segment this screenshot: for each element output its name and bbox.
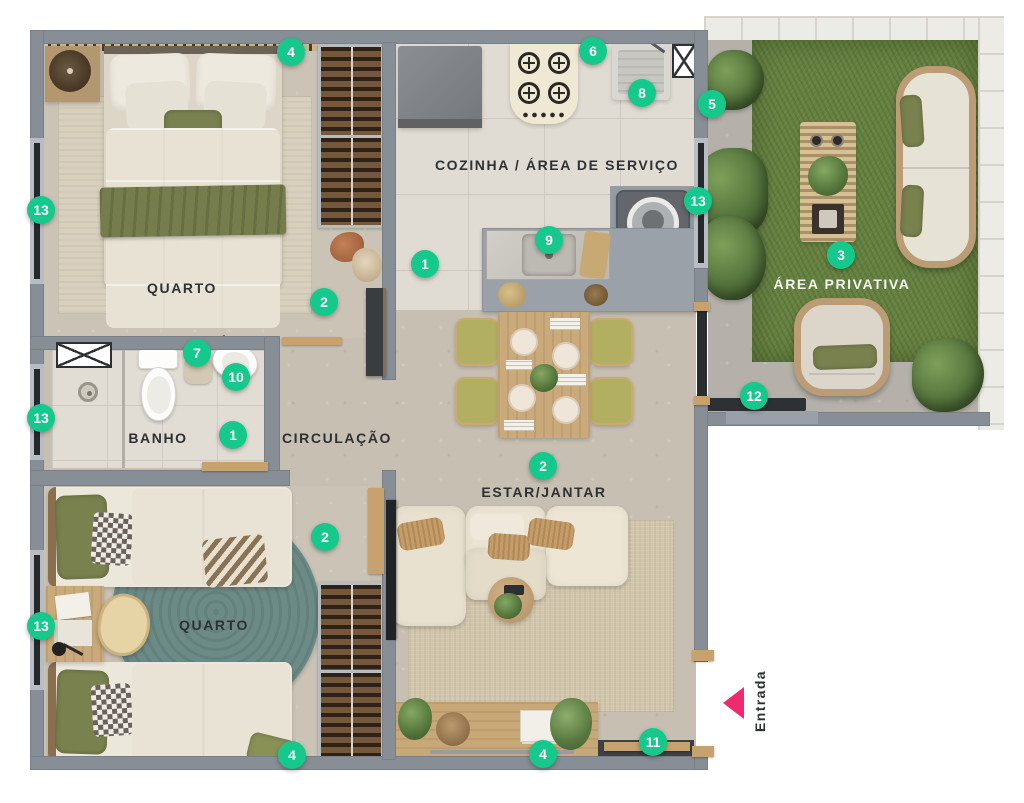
- entrance-label: Entrada: [752, 670, 768, 732]
- notebook: [55, 592, 92, 620]
- console-plant: [398, 698, 432, 740]
- console-flowers: [550, 698, 592, 750]
- toilet: [138, 349, 178, 369]
- desk: [46, 586, 104, 662]
- bath-stool: [184, 358, 212, 384]
- room-label-circulacao: CIRCULAÇÃO: [282, 430, 392, 446]
- armchair-seam: [809, 373, 875, 375]
- dining-chair: [455, 318, 499, 366]
- plate: [510, 328, 538, 356]
- toilet-bowl: [141, 367, 176, 421]
- fridge: [398, 46, 482, 128]
- patio-door-jamb: [694, 396, 710, 405]
- outdoor-armchair: [794, 298, 890, 396]
- fridge-base: [398, 119, 482, 128]
- drain-dot: [87, 391, 92, 396]
- bedroom2-door-leaf: [368, 488, 384, 574]
- shower-divider: [122, 350, 125, 468]
- wardrobe-section: [321, 47, 381, 135]
- outdoor-sofa-pillow: [900, 184, 925, 237]
- stove-knobs: [521, 110, 567, 120]
- lamp-dot: [67, 68, 73, 74]
- wall-bottom: [30, 756, 708, 770]
- dining-table: [498, 312, 590, 438]
- window: [30, 364, 44, 460]
- wardrobe: [318, 44, 384, 228]
- shower-drain: [78, 382, 98, 402]
- entry-door-jamb: [692, 746, 714, 757]
- sink-bowl: [219, 349, 251, 377]
- console-bowl: [436, 712, 470, 746]
- outdoor-sofa-pillow: [899, 94, 925, 147]
- placemat: [504, 420, 534, 431]
- hall-cabinet: [366, 288, 386, 376]
- placemat: [550, 318, 580, 330]
- table-plant: [808, 156, 848, 196]
- laundry-sink-basin: [618, 50, 664, 94]
- window: [30, 138, 44, 284]
- patio-leafy-plant: [700, 216, 766, 300]
- wardrobe-section: [321, 138, 381, 225]
- patio-door-jamb: [694, 302, 710, 311]
- sofa-pillow: [487, 533, 531, 562]
- coffee-table-plant: [494, 593, 522, 619]
- room-label-quarto2: QUARTO: [179, 617, 249, 633]
- room-label-area-privativa: ÁREA PRIVATIVA: [774, 276, 911, 292]
- wall-right-lower: [694, 398, 708, 662]
- entry-door-jamb: [692, 650, 714, 661]
- sink-drain: [545, 251, 553, 259]
- cup: [810, 134, 823, 147]
- plate: [552, 342, 580, 370]
- headboard: [104, 46, 282, 54]
- soundbar: [430, 750, 574, 754]
- entrance-arrow-icon: [723, 687, 744, 719]
- dining-chair: [455, 377, 499, 425]
- green-throw: [100, 184, 287, 237]
- room-label-banho: BANHO: [128, 430, 187, 446]
- patio-sliding-door: [702, 398, 806, 411]
- laundry-sink: [612, 44, 670, 100]
- wall-bedroom2-top: [30, 470, 290, 486]
- dining-chair: [589, 377, 633, 425]
- double-bed: [104, 46, 282, 286]
- dried-flowers: [352, 248, 382, 282]
- coffee-table: [488, 577, 534, 623]
- entry-door-leaf: [604, 742, 690, 751]
- stove-burner: [548, 52, 570, 74]
- tray-card: [819, 210, 837, 228]
- wall-mounted-tv: [386, 500, 396, 640]
- patio-paver-border-top: [704, 16, 1004, 42]
- window-marker: [672, 44, 696, 78]
- stove-burner: [518, 82, 540, 104]
- toilet-seat: [147, 376, 171, 414]
- armchair-pillow: [813, 344, 878, 370]
- room-label-quarto1: QUARTO: [147, 280, 217, 296]
- grapes-plate: [498, 282, 526, 308]
- wardrobe: [318, 582, 384, 760]
- bedroom1-door-leaf: [282, 337, 342, 345]
- wardrobe-section: [321, 585, 381, 670]
- stove: [510, 44, 578, 124]
- placemat: [506, 360, 532, 370]
- wall-top: [30, 30, 708, 44]
- patterned-pillow: [90, 512, 134, 567]
- cup: [831, 134, 844, 147]
- table-centerpiece: [530, 364, 558, 392]
- placemat: [556, 374, 586, 386]
- wall-right-upper: [694, 30, 708, 140]
- single-bed: [48, 487, 292, 587]
- zigzag-throw: [202, 534, 269, 588]
- patio-door-step: [726, 411, 818, 424]
- patio-glass-door: [697, 310, 707, 398]
- table-tray: [812, 204, 844, 234]
- bathroom-door-leaf: [202, 462, 268, 471]
- patterned-pillow: [90, 683, 134, 738]
- flower-vase: [584, 284, 608, 306]
- outdoor-sofa-seam: [903, 167, 969, 169]
- bathroom-window-marker: [56, 342, 112, 368]
- single-bed: [48, 662, 292, 762]
- window: [694, 138, 708, 268]
- tv-console: [392, 702, 598, 758]
- floor-plan: QUARTO COZINHA / ÁREA DE SERVIÇO ÁREA PR…: [0, 0, 1024, 803]
- plate: [552, 396, 580, 424]
- room-label-cozinha: COZINHA / ÁREA DE SERVIÇO: [435, 157, 679, 173]
- stove-burner: [518, 52, 540, 74]
- window: [30, 550, 44, 690]
- slatted-garden-table: [800, 122, 856, 242]
- nightstand: [45, 46, 100, 102]
- dining-chair: [589, 318, 633, 366]
- plate: [508, 384, 536, 412]
- room-label-estar-jantar: ESTAR/JANTAR: [481, 484, 606, 500]
- wardrobe-section: [321, 673, 381, 757]
- counter-sink-basin: [522, 234, 576, 276]
- outdoor-sofa: [896, 66, 976, 268]
- stove-burner: [548, 82, 570, 104]
- wall-bathroom-right: [264, 336, 280, 482]
